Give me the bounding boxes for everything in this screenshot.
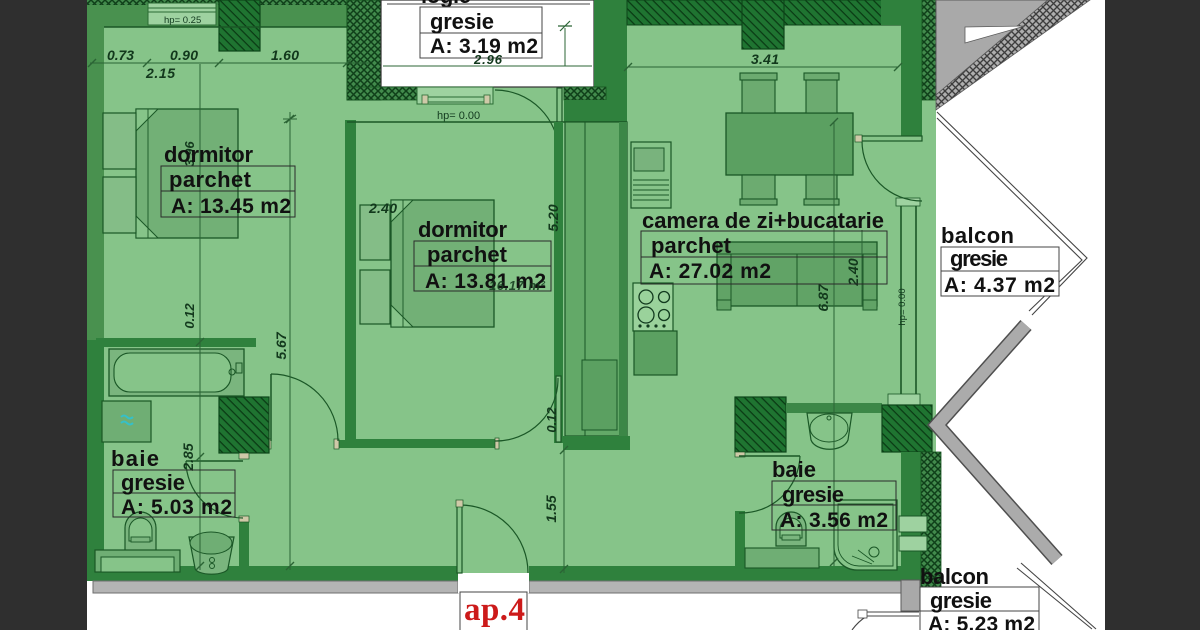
svg-text:1.55: 1.55: [543, 495, 559, 522]
svg-text:dormitor: dormitor: [164, 142, 253, 167]
svg-text:A: 3.56 m2: A: 3.56 m2: [780, 509, 888, 532]
svg-text:6.87: 6.87: [815, 283, 831, 311]
svg-text:5.67: 5.67: [273, 331, 289, 359]
svg-text:A: 5.03 m2: A: 5.03 m2: [121, 496, 232, 519]
svg-text:2.15: 2.15: [145, 65, 175, 81]
svg-text:1.60: 1.60: [271, 47, 299, 63]
svg-text:gresie: gresie: [121, 470, 185, 495]
svg-text:balcon: balcon: [920, 564, 989, 589]
svg-text:A: 27.02 m2: A: 27.02 m2: [649, 260, 771, 283]
svg-text:A: 4.37 m2: A: 4.37 m2: [944, 274, 1055, 297]
svg-text:dormitor: dormitor: [418, 217, 507, 242]
svg-text:gresie: gresie: [930, 588, 992, 613]
svg-text:hp= 0.25: hp= 0.25: [164, 15, 201, 26]
svg-text:A: 5.23 m2: A: 5.23 m2: [928, 613, 1035, 630]
svg-text:2.96: 2.96: [473, 52, 503, 67]
svg-text:5.20: 5.20: [545, 204, 561, 231]
svg-text:parchet: parchet: [651, 233, 732, 258]
svg-text:hp= 0.00: hp= 0.00: [897, 288, 908, 325]
svg-text:parchet: parchet: [169, 167, 252, 192]
svg-text:16.17 m²: 16.17 m²: [489, 278, 546, 293]
svg-text:3.41: 3.41: [751, 51, 779, 67]
svg-text:camera de zi+bucatarie: camera de zi+bucatarie: [642, 208, 884, 233]
svg-text:hp= 0.00: hp= 0.00: [437, 110, 480, 122]
svg-text:balcon: balcon: [941, 223, 1014, 248]
svg-text:ap.4: ap.4: [464, 592, 525, 628]
svg-text:gresie: gresie: [782, 482, 844, 507]
svg-text:gresie: gresie: [430, 9, 494, 34]
svg-text:baie: baie: [772, 457, 816, 482]
svg-text:0.12: 0.12: [182, 303, 197, 329]
svg-text:0.90: 0.90: [170, 47, 198, 63]
svg-text:parchet: parchet: [427, 242, 508, 267]
svg-text:A: 13.45 m2: A: 13.45 m2: [171, 195, 291, 218]
svg-text:baie: baie: [111, 446, 159, 471]
svg-text:2.85: 2.85: [180, 443, 196, 471]
svg-text:0.73: 0.73: [107, 47, 134, 63]
svg-text:gresie: gresie: [950, 246, 1008, 271]
svg-text:2.40: 2.40: [845, 258, 861, 286]
svg-text:0.12: 0.12: [544, 407, 559, 433]
svg-text:2.40: 2.40: [368, 200, 397, 216]
